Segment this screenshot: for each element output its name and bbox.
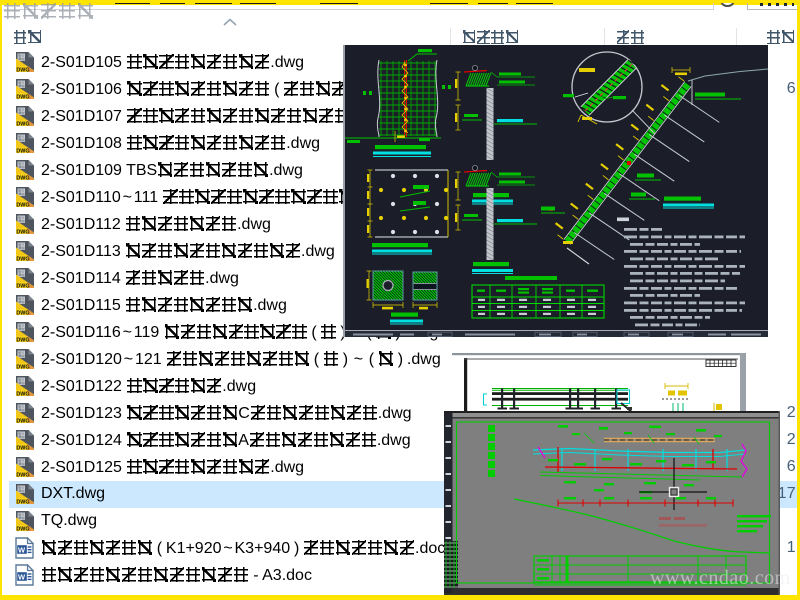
svg-text:W: W bbox=[18, 545, 26, 554]
svg-text:DWG: DWG bbox=[16, 310, 29, 316]
svg-text:DWG: DWG bbox=[16, 67, 29, 73]
svg-text:DWG: DWG bbox=[16, 445, 29, 451]
svg-text:DWG: DWG bbox=[16, 418, 29, 424]
svg-text:DWG: DWG bbox=[16, 148, 29, 154]
svg-text:DWG: DWG bbox=[16, 121, 29, 127]
svg-text:DWG: DWG bbox=[16, 364, 29, 370]
svg-text:DWG: DWG bbox=[16, 499, 29, 505]
svg-text:DWG: DWG bbox=[16, 526, 29, 532]
svg-text:W: W bbox=[18, 572, 26, 581]
svg-text:DWG: DWG bbox=[16, 175, 29, 181]
svg-text:DWG: DWG bbox=[16, 229, 29, 235]
svg-text:DWG: DWG bbox=[16, 94, 29, 100]
svg-text:DWG: DWG bbox=[16, 202, 29, 208]
svg-text:DWG: DWG bbox=[16, 256, 29, 262]
svg-text:DWG: DWG bbox=[16, 283, 29, 289]
svg-text:DWG: DWG bbox=[16, 472, 29, 478]
svg-text:DWG: DWG bbox=[16, 391, 29, 397]
svg-text:DWG: DWG bbox=[16, 337, 29, 343]
